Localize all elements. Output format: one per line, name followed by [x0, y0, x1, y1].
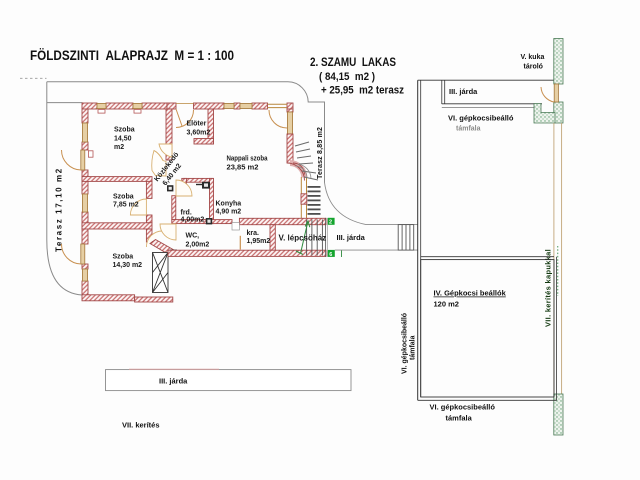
- svg-text:támfala: támfala: [410, 335, 417, 360]
- svg-text:2. SZAMU LAKAS: 2. SZAMU LAKAS: [310, 57, 396, 69]
- svg-text:2,00m2: 2,00m2: [186, 242, 210, 249]
- svg-text:VI. gépkocsibeálló: VI. gépkocsibeálló: [448, 114, 514, 123]
- svg-text:23,85 m2: 23,85 m2: [227, 165, 259, 172]
- svg-text:tároló: tároló: [524, 64, 543, 71]
- svg-text:Szoba: Szoba: [113, 254, 134, 261]
- svg-text:VII. kerítés kapukkal: VII. kerítés kapukkal: [544, 249, 553, 327]
- svg-text:Terasz 17,10 m2: Terasz 17,10 m2: [55, 167, 64, 252]
- svg-text:7,85 m2: 7,85 m2: [113, 202, 139, 209]
- svg-text:m2: m2: [114, 144, 124, 151]
- svg-text:+ 25,95 m2 terasz: + 25,95 m2 terasz: [321, 85, 404, 97]
- svg-text:III. járda: III. járda: [337, 233, 366, 242]
- svg-text:( 84,15 m2 ): ( 84,15 m2 ): [319, 71, 375, 83]
- svg-text:frd.: frd.: [181, 210, 192, 217]
- svg-text:Elöter: Elöter: [187, 121, 207, 128]
- svg-text:14,30 m2: 14,30 m2: [113, 262, 143, 269]
- svg-text:VI. gépkocsibeálló: VI. gépkocsibeálló: [430, 403, 496, 412]
- svg-text:1,95m2: 1,95m2: [247, 238, 271, 245]
- svg-text:120 m2: 120 m2: [434, 300, 459, 309]
- svg-text:Szoba: Szoba: [114, 127, 135, 134]
- svg-text:3,60m2: 3,60m2: [187, 130, 211, 137]
- svg-text:V. kuka: V. kuka: [521, 54, 545, 61]
- svg-text:2: 2: [329, 220, 332, 226]
- svg-text:6: 6: [329, 252, 332, 258]
- svg-text:4,00m2: 4,00m2: [181, 217, 205, 224]
- svg-text:Terasz 8,85 m2: Terasz 8,85 m2: [317, 127, 324, 179]
- svg-text:IV. Gépkocsi beállók: IV. Gépkocsi beállók: [434, 289, 507, 298]
- svg-text:WC,: WC,: [186, 233, 200, 240]
- svg-text:kra.: kra.: [247, 230, 260, 237]
- svg-text:Nappali szoba: Nappali szoba: [227, 156, 268, 163]
- svg-text:III. járda: III. járda: [159, 377, 188, 386]
- svg-text:14,50: 14,50: [114, 136, 132, 143]
- svg-text:V. lépcsöház: V. lépcsöház: [279, 234, 327, 243]
- svg-text:4,90 m2: 4,90 m2: [216, 209, 242, 216]
- svg-text:FÖLDSZINTI ALAPRAJZ M = 1 :: FÖLDSZINTI ALAPRAJZ M = 1 : 100: [30, 48, 234, 63]
- svg-text:VI. gépkocsibeálló: VI. gépkocsibeálló: [402, 313, 409, 374]
- svg-text:III. járda: III. járda: [449, 87, 478, 96]
- svg-text:VII. kerítés: VII. kerítés: [122, 421, 160, 430]
- svg-text:Szoba: Szoba: [113, 194, 134, 201]
- svg-text:Konyha: Konyha: [216, 201, 242, 208]
- svg-text:támfala: támfala: [456, 126, 481, 133]
- svg-text:támfala: támfala: [446, 414, 473, 423]
